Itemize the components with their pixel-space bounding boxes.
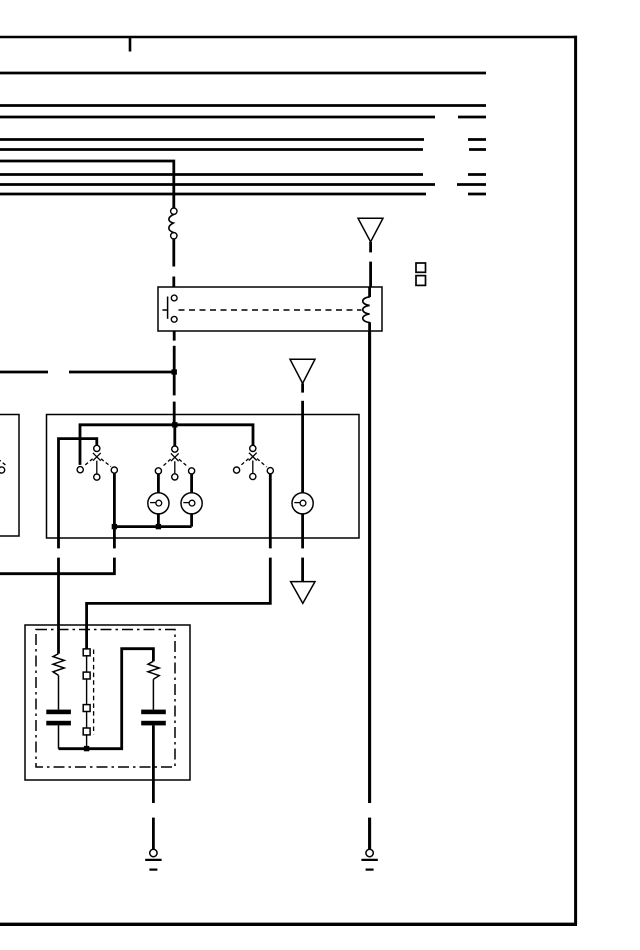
lamp-icon	[292, 493, 313, 514]
flasher-link-wire	[59, 649, 154, 749]
switch-throw-dashed	[0, 459, 7, 466]
switch-throw-dashed	[101, 459, 111, 467]
flasher-unit-box	[25, 625, 190, 780]
switch-throw-dashed	[240, 459, 249, 467]
lamp-icon	[148, 493, 169, 514]
switch-feed-wire	[59, 439, 97, 549]
wiring-diagram-page	[0, 0, 640, 950]
contact-point-square	[83, 649, 90, 656]
switch-common-terminal	[250, 445, 256, 451]
breaker-terminal	[171, 208, 177, 214]
relay-coil-icon	[363, 297, 370, 323]
capacitor-plate	[46, 710, 71, 715]
relay-contact-terminal	[171, 295, 177, 301]
ground-icon	[150, 849, 157, 856]
circuit-breaker-icon	[169, 214, 174, 232]
switch-contact-terminal	[250, 473, 256, 479]
contact-point-square	[83, 672, 90, 679]
relay-contact-terminal	[171, 316, 177, 322]
feed-bus-wire	[80, 425, 253, 465]
lamp-icon	[181, 493, 202, 514]
resistor-icon	[148, 661, 159, 679]
lamp-filament	[189, 500, 195, 506]
switch-throw-dashed	[257, 459, 267, 467]
connector-triangle-icon	[358, 218, 383, 242]
contact-point-square	[83, 728, 90, 735]
switch-contact-terminal	[94, 474, 100, 480]
wiring-diagram	[0, 0, 640, 950]
switch-contact-terminal	[77, 467, 83, 473]
connector-pin-square	[416, 263, 426, 272]
switch-throw-dashed	[84, 459, 93, 467]
edge-component-box	[0, 415, 19, 537]
switch-common-terminal	[172, 446, 178, 452]
ground-icon	[366, 849, 373, 856]
lamp-filament	[156, 500, 162, 506]
switch-throw-dashed	[162, 459, 171, 467]
junction-dot	[172, 369, 177, 374]
switch-contact-terminal	[155, 468, 161, 474]
capacitor-plate	[46, 721, 71, 726]
relay-box	[158, 287, 382, 331]
switch-contact-terminal	[267, 468, 273, 474]
connector-triangle-icon	[291, 582, 315, 604]
breaker-terminal	[171, 233, 177, 239]
switch-common-terminal	[94, 445, 100, 451]
lamp-filament	[300, 500, 306, 506]
switch-contact-terminal	[111, 467, 117, 473]
switch-contact-terminal	[234, 467, 240, 473]
capacitor-plate	[141, 721, 166, 726]
connector-pin-square	[416, 276, 426, 286]
capacitor-plate	[141, 710, 166, 715]
contact-point-square	[83, 705, 90, 712]
switch-contact-terminal	[0, 467, 5, 473]
switch-contact-terminal	[189, 468, 195, 474]
switch-contact-terminal	[172, 474, 178, 480]
switch-throw-dashed	[179, 459, 188, 467]
connector-triangle-icon	[290, 359, 315, 383]
resistor-icon	[53, 654, 64, 676]
